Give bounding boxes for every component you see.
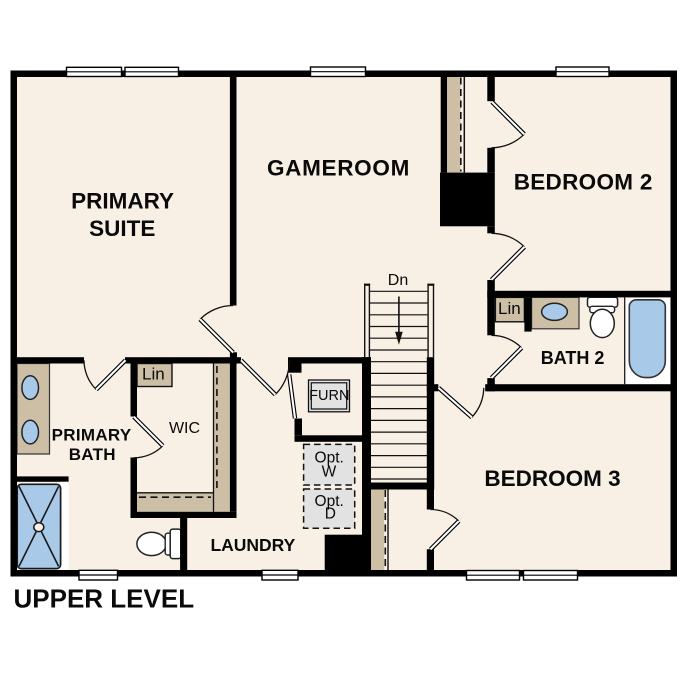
svg-text:GAMEROOM: GAMEROOM [267,156,410,181]
svg-text:Dn: Dn [388,272,408,289]
svg-text:BEDROOM 2: BEDROOM 2 [514,170,653,195]
svg-text:BATH 2: BATH 2 [541,348,605,368]
svg-text:Lin: Lin [142,365,165,384]
svg-text:BEDROOM 3: BEDROOM 3 [484,466,620,491]
svg-text:FURN: FURN [309,388,349,404]
svg-text:D: D [325,505,336,522]
svg-text:PRIMARY: PRIMARY [71,189,174,214]
svg-text:BATH: BATH [69,445,116,464]
svg-text:WIC: WIC [169,420,200,437]
svg-text:W: W [322,463,337,480]
svg-text:PRIMARY: PRIMARY [52,425,132,444]
svg-text:UPPER LEVEL: UPPER LEVEL [14,584,195,614]
svg-text:LAUNDRY: LAUNDRY [210,535,295,555]
svg-text:SUITE: SUITE [89,216,155,241]
svg-text:Lin: Lin [498,299,521,318]
